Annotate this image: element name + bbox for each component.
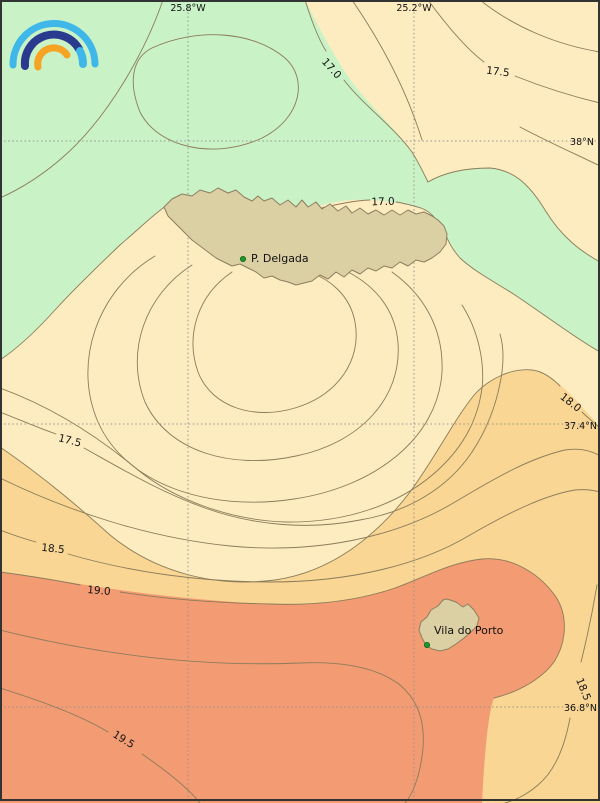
- marker-p-delgada: [240, 256, 245, 261]
- map-canvas: P. Delgada Vila do Porto 17.0 17.0 17.5 …: [0, 0, 600, 803]
- lat-label-36-8n: 36.8°N: [564, 703, 597, 714]
- sst-contour-map: P. Delgada Vila do Porto 17.0 17.0 17.5 …: [0, 0, 600, 803]
- place-label-p-delgada: P. Delgada: [251, 252, 309, 265]
- place-label-vila-do-porto: Vila do Porto: [434, 624, 504, 637]
- logo-middle-arc-tip: [80, 51, 83, 64]
- marker-vila-do-porto: [424, 642, 429, 647]
- contour-label-18-5-left: 18.5: [41, 542, 66, 556]
- contour-label-17-0-island: 17.0: [371, 196, 395, 209]
- lat-label-38n: 38°N: [570, 137, 594, 148]
- lat-label-37-4n: 37.4°N: [564, 421, 597, 432]
- contour-label-19-0-left: 19.0: [87, 584, 111, 598]
- lon-label-25-2w: 25.2°W: [396, 3, 432, 14]
- lon-label-25-8w: 25.8°W: [170, 3, 206, 14]
